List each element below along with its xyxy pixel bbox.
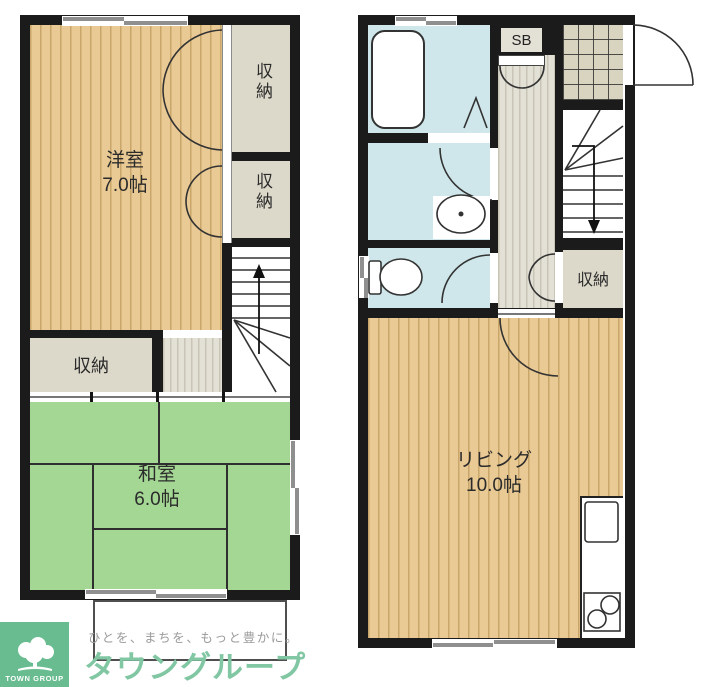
logo-en-label: TOWN GROUP: [5, 674, 63, 687]
floorplan-canvas: 洋室 7.0帖 収納 収納 収納 和室 6.0帖 SB 収納: [0, 0, 713, 687]
window-sash: [156, 594, 226, 598]
room-size: 6.0帖: [97, 487, 217, 512]
floor1-outline: [358, 15, 635, 648]
room-label-japanese: 和室 6.0帖: [97, 462, 217, 512]
closet-label-2: 収納: [250, 172, 275, 232]
tree-icon: [12, 636, 58, 674]
window-sash: [86, 590, 156, 594]
window-sash: [433, 643, 493, 647]
room-name: 洋室: [65, 148, 185, 173]
logo-brand: タウングループ: [84, 642, 306, 687]
window-sash: [396, 17, 426, 21]
room-size: 7.0帖: [65, 173, 185, 198]
entrance-door: [633, 25, 693, 85]
window-sash: [295, 488, 299, 534]
window-sash: [291, 441, 295, 488]
closet-label-hall: 収納: [30, 352, 152, 378]
closet-label-1f: 収納: [563, 266, 623, 290]
window-sash: [124, 21, 187, 25]
window-sash: [360, 257, 364, 278]
logo-town-group: TOWN GROUP: [0, 622, 69, 687]
closet-label-1: 収納: [250, 62, 275, 142]
window-sash: [364, 278, 368, 298]
room-label-western: 洋室 7.0帖: [65, 148, 185, 198]
room-name: 和室: [97, 462, 217, 487]
window-sash: [426, 21, 456, 25]
room-size: 10.0帖: [424, 473, 564, 498]
room-label-living: リビング 10.0帖: [424, 448, 564, 498]
entrance-door-gap: [623, 25, 633, 85]
window-sash: [494, 640, 555, 644]
window-sash: [63, 17, 124, 21]
room-name: リビング: [424, 448, 564, 473]
